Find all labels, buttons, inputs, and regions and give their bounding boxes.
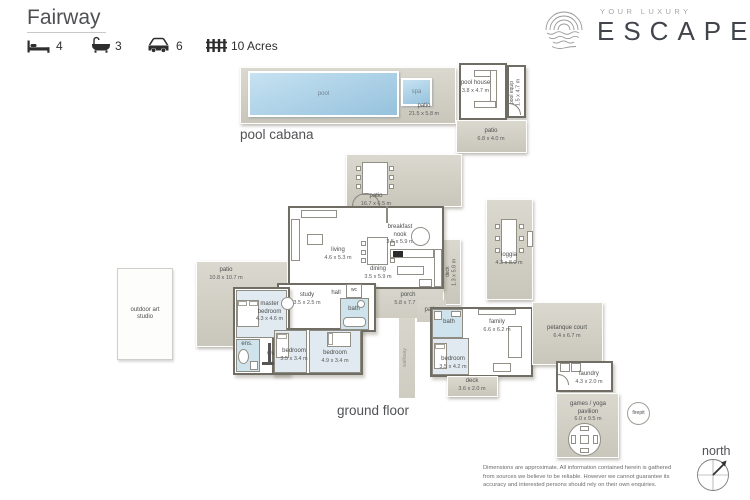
pool-house-counter [474, 101, 496, 108]
chair [495, 236, 500, 241]
ground-floor-label: ground floor [337, 403, 409, 418]
page-title: Fairway [27, 6, 101, 30]
patio-left-label: patio 10.8 x 10.7 m [202, 267, 250, 281]
pavilion-label: games / yoga pavilion 6.0 x 9.5 m [564, 401, 612, 423]
deck-bottom-label: deck 3.6 x 2.0 m [452, 378, 492, 392]
basin [357, 300, 365, 308]
pool-house-label: pool house 3.8 x 4.7 m [460, 80, 491, 94]
firepit-label: firepit [632, 410, 644, 416]
firepit: firepit [627, 402, 650, 425]
pool: pool [248, 71, 399, 117]
petanque-label: petanque court 6.4 x 6.7 m [544, 325, 590, 339]
sofa [291, 219, 300, 261]
title-underline [27, 32, 106, 33]
chair [389, 175, 394, 180]
bedroom-label: bedroom 3.5 x 4.2 m [438, 356, 468, 370]
coffee-table [307, 234, 323, 245]
floorplan-page: Fairway 4 3 6 10 Acres [0, 0, 750, 500]
brand-tagline: YOUR LUXURY [600, 7, 691, 16]
bath-label: bath [440, 319, 458, 327]
chair [389, 166, 394, 171]
bath-count: 3 [115, 39, 122, 53]
bedroom-label: bedroom 3.5 x 3.4 m [280, 348, 308, 362]
brand-name: ESCAPE [597, 16, 750, 47]
brand-logo-icon [540, 4, 588, 52]
disclaimer-line: from sources we believe to be reliable. … [483, 473, 693, 482]
living-label: living 4.6 x 5.3 m [320, 247, 356, 261]
car-icon [147, 37, 170, 53]
bedroom-label: bedroom 4.9 x 3.4 m [318, 350, 352, 364]
pillow [238, 301, 247, 306]
laundry-label: laundry 4.3 x 2.0 m [569, 371, 609, 385]
toilet [250, 361, 258, 370]
pool-cabana-patio-label: patio 21.5 x 5.8 m [398, 103, 450, 117]
chair [361, 250, 366, 255]
wall-segment [386, 206, 388, 223]
wc-label: wc [348, 287, 360, 293]
fence-icon [206, 39, 227, 52]
disclaimer-line: accuracy and interested persons should r… [483, 481, 693, 490]
sofa [301, 210, 337, 218]
spa: spa [401, 78, 432, 106]
chair [361, 241, 366, 246]
disclaimer-line: Dimensions are approximate. All informat… [483, 464, 693, 473]
pool-house-patio-label: patio 6.8 x 4.0 m [470, 128, 512, 142]
fridge [419, 279, 432, 287]
bed-icon [27, 40, 50, 53]
chair [519, 224, 524, 229]
north-label: north [702, 444, 731, 458]
pool-cabana-section-label: pool cabana [240, 127, 314, 142]
side-table [493, 363, 511, 372]
loggia-fireplace [527, 231, 533, 247]
walkway-label: walkway [402, 332, 412, 384]
chair [356, 184, 361, 189]
chair [571, 435, 576, 444]
dining-label: dining 3.5 x 5.9 m [362, 266, 394, 280]
chair [361, 258, 366, 263]
breakfast-table [411, 227, 430, 246]
kitchen-island [397, 266, 424, 275]
loggia-label: loggia 4.3 x 8.0 m [490, 252, 528, 266]
car-count: 6 [176, 39, 183, 53]
toilet [434, 311, 442, 320]
compass-icon [695, 457, 731, 493]
chair [389, 184, 394, 189]
chair [390, 258, 395, 263]
chair [356, 166, 361, 171]
family-label: family 6.6 x 6.2 m [481, 319, 513, 333]
tv-unit [478, 309, 516, 315]
outdoor-art-studio: outdoor art studio [117, 268, 173, 360]
chair [495, 224, 500, 229]
stove [393, 251, 403, 257]
chair [580, 426, 589, 431]
chair [580, 448, 589, 453]
chair [356, 175, 361, 180]
outdoor-dining-table [362, 162, 388, 195]
chair [519, 236, 524, 241]
kitchen-counter [434, 249, 442, 287]
pillow [277, 334, 287, 339]
land-size: 10 Acres [231, 39, 278, 53]
deck-side-label: deck 1.3 x 5.8 m [445, 246, 459, 298]
ensuite-label: ens. [238, 341, 256, 349]
hall-label: hall [327, 290, 345, 298]
basin [451, 311, 461, 317]
pavilion-center-table [580, 435, 589, 444]
bathtub [343, 317, 366, 327]
bathtub [238, 349, 249, 364]
study-label: study 3.5 x 2.5 m [293, 292, 321, 306]
pillow [328, 333, 333, 345]
chair [593, 435, 598, 444]
art-studio-label: outdoor art studio [129, 307, 161, 322]
bed-count: 4 [56, 39, 63, 53]
wardrobe-rail [268, 343, 271, 362]
pillow [435, 344, 445, 349]
bath-icon [91, 36, 111, 53]
disclaimer: Dimensions are approximate. All informat… [483, 464, 693, 490]
